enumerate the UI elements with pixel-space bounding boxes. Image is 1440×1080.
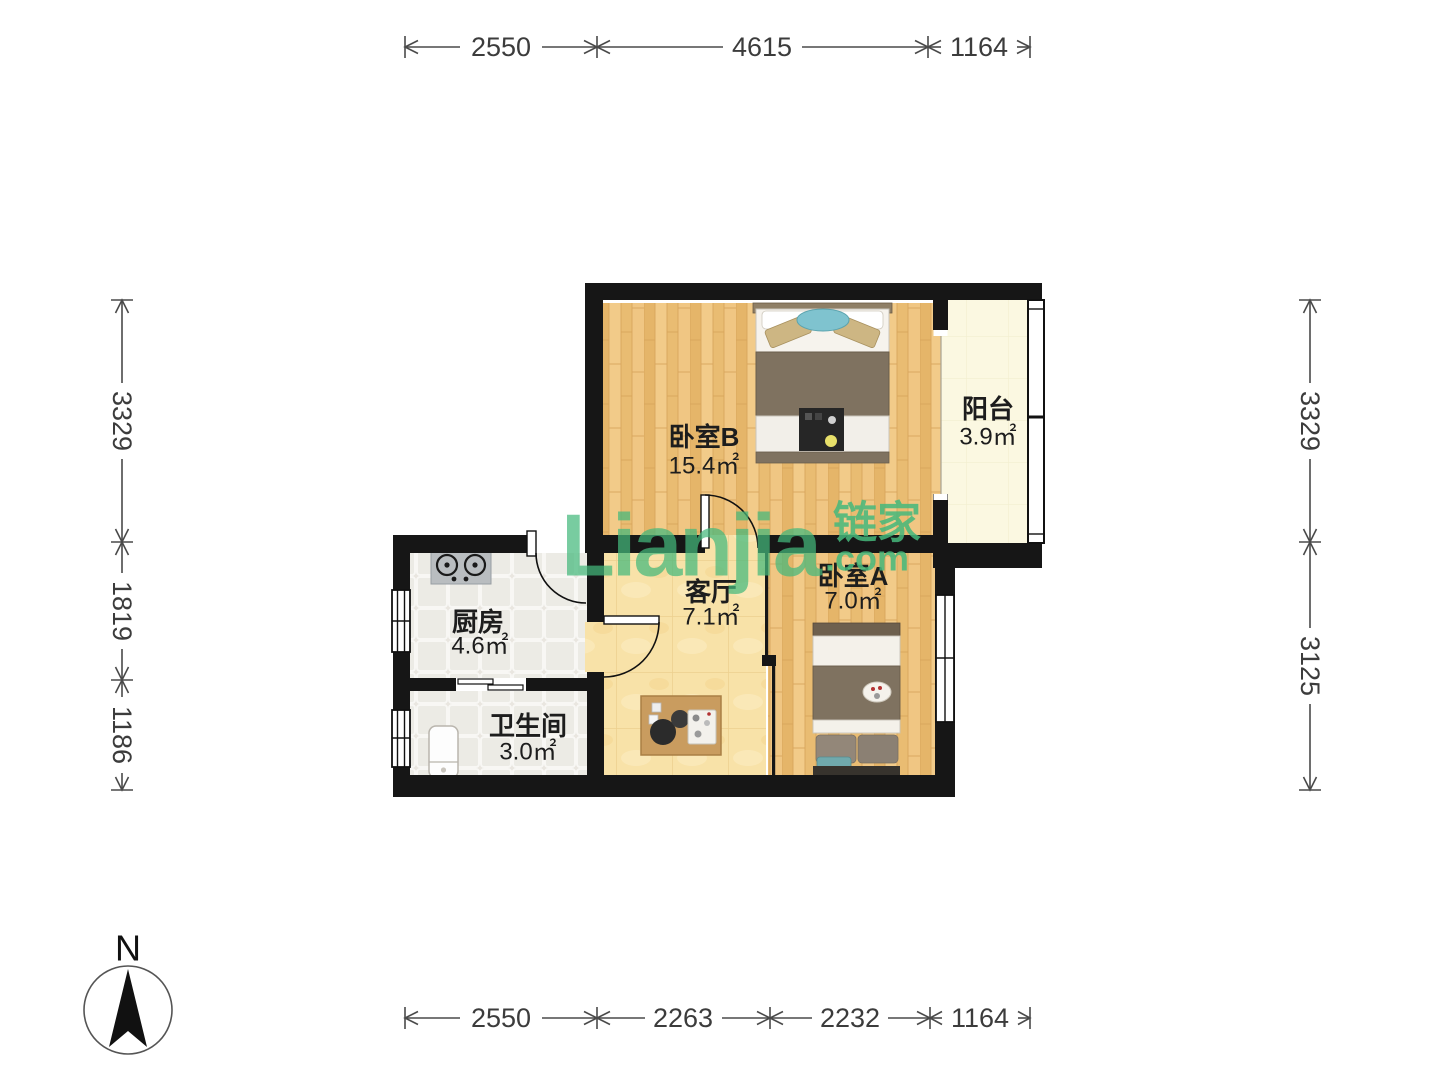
floorplan-canvas: 卧室B 15.4㎡ 阳台 3.9㎡ 厨房 4.6㎡ 客厅 7.1㎡ 卧室A 7.… xyxy=(0,0,1440,1080)
wall-bottom xyxy=(393,775,955,797)
bedroom-a-window xyxy=(936,595,954,722)
bathroom-area: 3.0㎡ xyxy=(499,739,556,766)
dim-left-2: 1819 xyxy=(107,581,137,641)
wall-kitchen-top xyxy=(393,535,528,553)
wall-balcony-divider-bottom xyxy=(933,494,948,545)
floorplan-page: 卧室B 15.4㎡ 阳台 3.9㎡ 厨房 4.6㎡ 客厅 7.1㎡ 卧室A 7.… xyxy=(0,0,1440,1080)
bathroom-window xyxy=(392,710,410,767)
watermark-brand: Lianjia xyxy=(561,496,823,595)
dim-left-1: 3329 xyxy=(107,391,137,451)
balcony-area: 3.9㎡ xyxy=(959,424,1016,451)
dim-bottom-2: 2263 xyxy=(653,1003,713,1033)
kitchen-window xyxy=(392,590,410,652)
dim-top-2: 4615 xyxy=(732,32,792,62)
wall-top xyxy=(585,283,1042,300)
balcony-divider-notch-top xyxy=(934,330,948,336)
compass-north-label: N xyxy=(115,928,141,969)
dim-top-1: 2550 xyxy=(471,32,531,62)
bathroom-label: 卫生间 xyxy=(489,711,567,741)
balcony-divider-notch-bottom xyxy=(934,494,948,500)
gas-stove xyxy=(431,551,491,584)
kitchen-area: 4.6㎡ xyxy=(451,633,508,660)
dim-bottom-3: 2232 xyxy=(820,1003,880,1033)
compass: N xyxy=(84,928,172,1055)
balcony-label: 阳台 xyxy=(962,394,1014,424)
bedroom-a-area: 7.0㎡ xyxy=(824,588,881,615)
dim-bottom-4: 1164 xyxy=(951,1003,1009,1033)
bedroom-b-area: 15.4㎡ xyxy=(669,453,740,480)
coffee-table xyxy=(641,696,721,755)
balcony-window xyxy=(1028,300,1044,543)
dim-bottom-1: 2550 xyxy=(471,1003,531,1033)
bathroom-sliding-door xyxy=(456,678,526,691)
dim-right-1: 3329 xyxy=(1295,391,1325,451)
bedroom-b-label: 卧室B xyxy=(669,422,740,452)
dim-top-3: 1164 xyxy=(950,32,1008,62)
dim-right-2: 3125 xyxy=(1295,636,1325,696)
double-bed xyxy=(753,303,892,463)
wall-living-bedroom-a-partition-lower xyxy=(772,664,775,775)
kitchen-doorway-strip xyxy=(585,622,604,672)
toilet xyxy=(429,726,458,778)
wall-bathroom-right xyxy=(587,672,604,775)
dim-left-3: 1186 xyxy=(107,706,137,764)
watermark-tld: .com xyxy=(825,538,909,579)
living-area: 7.1㎡ xyxy=(682,604,739,631)
wall-balcony-divider-top xyxy=(933,283,948,330)
